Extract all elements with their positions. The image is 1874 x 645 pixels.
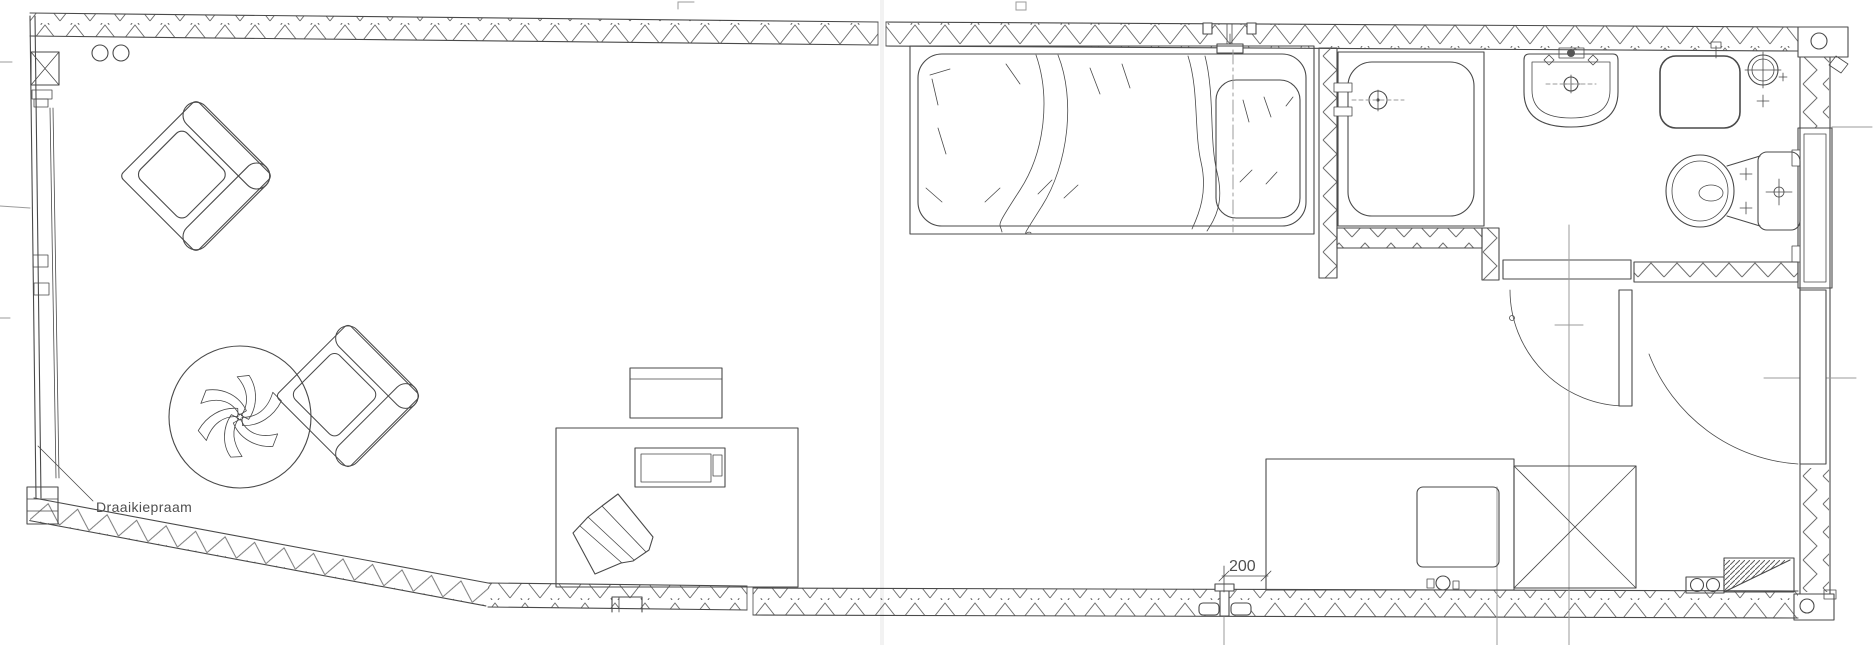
window-label: Draaikiepraam	[96, 499, 192, 515]
entrance-door	[1649, 290, 1826, 464]
plus-marks	[1740, 168, 1752, 214]
toilet-bowl	[1666, 155, 1734, 227]
duvet-fold	[1000, 55, 1044, 232]
faucet	[1546, 75, 1596, 93]
armchair-armrest	[178, 158, 276, 256]
pillow	[1216, 80, 1300, 218]
armchair-seat	[135, 128, 228, 221]
duvet-fold	[1188, 56, 1204, 229]
extractor-fan	[1745, 52, 1787, 107]
shower-wall-bottom	[1337, 228, 1499, 280]
ramp-hatch	[1724, 558, 1794, 592]
desk	[556, 428, 798, 587]
counter-fitting	[1427, 579, 1434, 588]
floor-plan-scan: Draaikiepraam	[0, 0, 1874, 645]
leader-line	[38, 446, 93, 501]
armchair-seat	[290, 350, 379, 439]
armchair-backrest	[178, 97, 276, 195]
left-wall	[27, 16, 59, 524]
desk-chair	[573, 494, 653, 574]
monitor-shelf	[630, 368, 722, 418]
shower-wall-left	[1319, 48, 1337, 278]
double-bed	[910, 46, 1314, 234]
kitchen-counter	[1266, 459, 1514, 590]
window-hinge	[33, 255, 48, 267]
tap-knob	[1567, 49, 1575, 57]
door-swing-arc	[1510, 290, 1626, 406]
armchair-armrest	[331, 379, 424, 472]
shower-tray	[1348, 62, 1474, 216]
top-wall	[30, 13, 1798, 51]
square-basin	[1660, 42, 1740, 128]
shower-enclosure	[1338, 52, 1484, 226]
window-hinge	[34, 283, 49, 295]
potted-plant	[169, 346, 311, 488]
laptop	[635, 448, 725, 487]
plus-mark	[1757, 95, 1769, 107]
armchair-2	[273, 321, 423, 471]
screw-cap	[113, 45, 129, 61]
door-opening-header	[1503, 260, 1631, 279]
section-lines	[1224, 225, 1583, 645]
desk-group	[556, 368, 798, 587]
appliance	[1417, 487, 1499, 567]
shower-room	[1319, 48, 1499, 280]
plus-mark	[1779, 73, 1787, 81]
bathroom-wall	[1503, 260, 1798, 282]
shower-door-hinge	[1334, 107, 1352, 116]
bathroom-door	[1510, 290, 1633, 406]
counter-fitting	[1436, 576, 1450, 590]
door-swing-arc	[1649, 354, 1798, 464]
duvet-fold	[1026, 55, 1068, 233]
tall-cabinet	[1514, 466, 1636, 588]
shower-drain	[1352, 90, 1404, 111]
toilet	[1666, 152, 1800, 230]
edge-tick-marks	[0, 0, 1026, 645]
pillow-creases	[1240, 97, 1293, 184]
floor-plan-drawing: Draaikiepraam	[0, 0, 1874, 645]
shower-door-hinge	[1334, 83, 1352, 92]
tap-handle	[1544, 55, 1554, 65]
corner-block-bottom-right	[1794, 590, 1836, 620]
duvet-wrinkles	[926, 64, 1130, 202]
screw-cap	[92, 45, 108, 61]
door-leaf	[1800, 290, 1826, 464]
washbasin	[1524, 48, 1618, 127]
armchair-backrest	[331, 321, 424, 414]
door-leaf	[1619, 290, 1632, 406]
counter-fitting	[1453, 581, 1459, 589]
cistern-crosshair	[1766, 179, 1792, 205]
plant-leaves	[197, 370, 283, 462]
tap-handle	[1588, 55, 1598, 65]
dimension-200-text: 200	[1229, 558, 1256, 575]
bottom-wall	[30, 498, 1798, 618]
armchair-1	[117, 97, 275, 255]
